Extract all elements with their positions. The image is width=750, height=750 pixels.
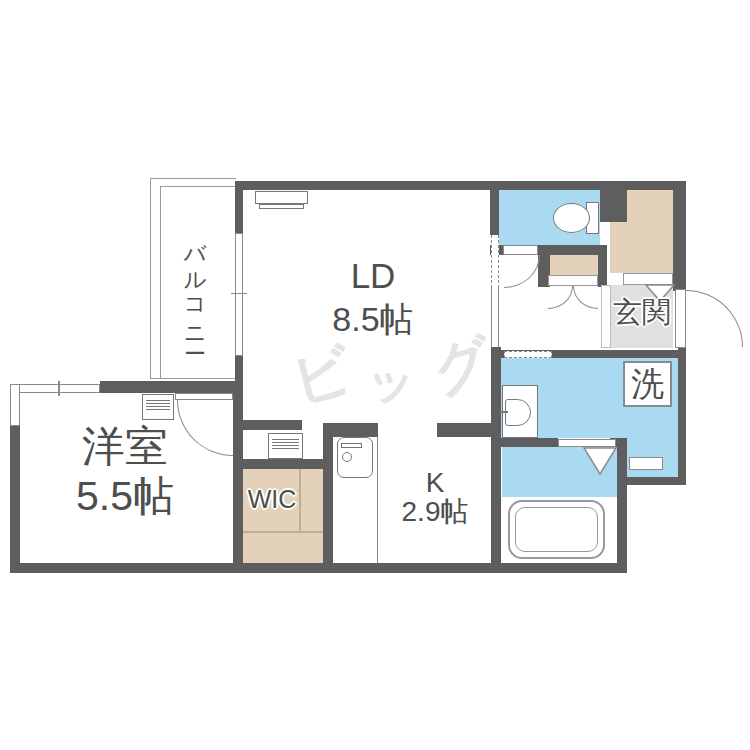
wall [235, 181, 243, 234]
agency-watermark: ビ ッ グ [290, 325, 495, 417]
wall [617, 477, 686, 485]
bathroom-door-mark [583, 447, 617, 475]
balcony-window [235, 233, 243, 356]
air-conditioner-icon [255, 191, 308, 204]
entrance-door-leaf [675, 289, 686, 348]
entrance-closet-lower [610, 220, 673, 273]
heater-louver [272, 437, 299, 450]
kitchen-burner [342, 452, 352, 462]
bathroom-door-rail [558, 439, 616, 447]
hall-closet [548, 255, 598, 275]
wall [100, 381, 243, 393]
wall [598, 245, 607, 287]
bathtub-inner [515, 507, 598, 552]
wall [10, 563, 627, 573]
floor-plan: 洗 ビ ッ グ バルコニー LD 8.5帖 洋室 5.5帖 K 2.9帖 WIC… [0, 0, 750, 750]
toilet-bowl [553, 203, 590, 233]
wall [323, 423, 378, 437]
corner-window-side [10, 384, 20, 426]
washbasin-bowl [505, 399, 531, 426]
wic-floor [243, 469, 323, 563]
washer-label: 洗 [631, 367, 664, 402]
washroom-step [629, 457, 663, 470]
wall [243, 459, 325, 469]
wall [10, 426, 20, 573]
heater-louver [146, 398, 170, 411]
washroom-sliding-door [504, 351, 552, 358]
living-dining-size: 8.5帖 [310, 302, 436, 338]
kitchen-label: K [405, 468, 465, 497]
corner-window-top [10, 384, 100, 393]
western-room-size: 5.5帖 [62, 475, 188, 518]
kitchen-counter-edge [377, 437, 378, 563]
kitchen-faucet [341, 443, 362, 448]
wic-divider-line [243, 531, 323, 533]
washer-space: 洗 [623, 361, 672, 407]
entrance-label: 玄関 [609, 297, 675, 327]
toilet-door-swing [504, 255, 540, 288]
living-dining-label: LD [325, 258, 421, 295]
wall [235, 355, 243, 393]
toilet-door-leaf [503, 245, 538, 255]
washbasin-faucet [500, 411, 508, 413]
balcony-label: バルコニー [184, 212, 207, 362]
wall [437, 423, 500, 437]
hall-closet-shelf [548, 275, 598, 286]
wall [673, 181, 686, 291]
western-room-label: 洋室 [62, 424, 188, 469]
closet-door-swing-right [573, 286, 598, 309]
closet-door-swing-left [548, 286, 573, 309]
wall [323, 423, 333, 563]
ld-open-partition-dashed [491, 235, 499, 288]
wall [490, 181, 499, 235]
entrance-closet-upper [627, 188, 673, 222]
window-tick [231, 293, 247, 294]
air-conditioner-vent [259, 204, 304, 209]
wall [233, 393, 243, 563]
wall [243, 420, 302, 430]
wic-label: WIC [241, 486, 303, 512]
wall [600, 181, 627, 222]
window-tick [58, 381, 60, 396]
wall [493, 438, 558, 447]
ld-open-partition [491, 288, 499, 347]
entrance-door-swing [686, 290, 743, 347]
kitchen-size: 2.9帖 [393, 497, 477, 526]
wall [678, 348, 686, 485]
western-room-door-leaf [175, 393, 233, 400]
wall [617, 438, 627, 573]
